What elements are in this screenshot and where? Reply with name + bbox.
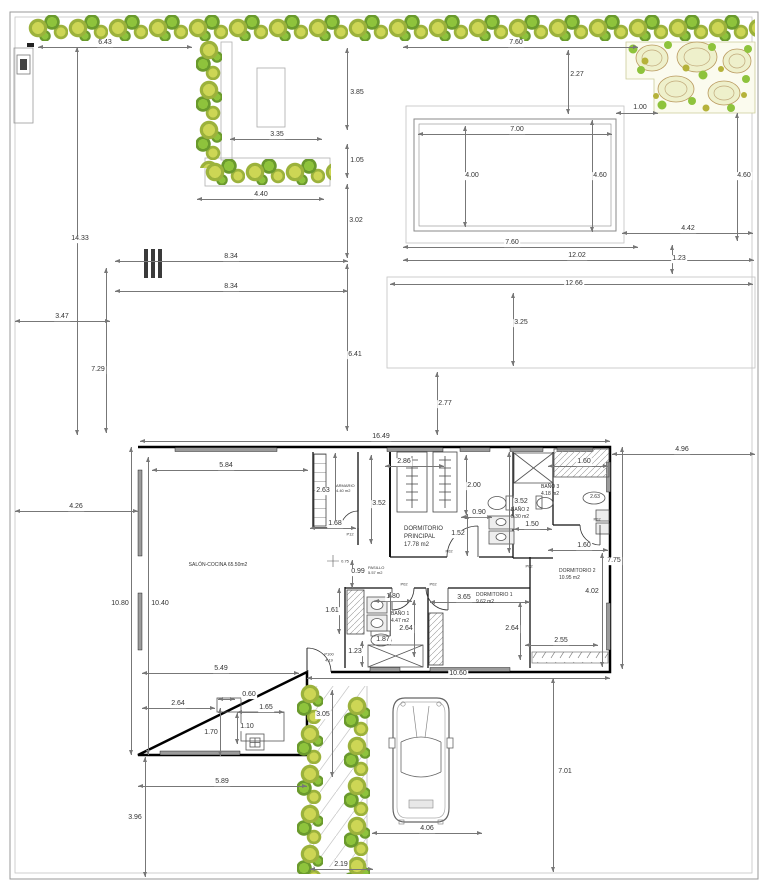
steps-icon — [144, 249, 162, 278]
terrace — [387, 277, 755, 368]
mirror-left — [389, 738, 395, 748]
armario-shelves — [314, 454, 326, 526]
hedge-l-vertical — [196, 40, 222, 168]
gate-post-mark — [27, 43, 34, 47]
plan-linework — [0, 0, 768, 891]
wardrobe — [347, 590, 364, 634]
garden-patch — [626, 41, 755, 113]
trunk — [409, 800, 433, 808]
pool — [406, 106, 624, 243]
hedge-driveway-right — [344, 696, 370, 874]
pergola-strip — [532, 652, 608, 663]
plot-boundary — [10, 12, 758, 879]
wardrobe — [429, 613, 443, 665]
mirror-right — [447, 738, 453, 748]
garden-shed — [257, 68, 285, 127]
shower-bano3 — [554, 449, 609, 477]
hedge-l-horizontal — [205, 159, 331, 186]
hedge-top — [28, 15, 755, 42]
car-top-view — [389, 698, 453, 824]
hedge-driveway-left — [297, 684, 323, 874]
floor-plan-sheet: 6.433.853.351.054.403.0214.338.348.343.4… — [0, 0, 768, 891]
pool-deck — [406, 106, 624, 243]
utility-meter-icon — [14, 48, 33, 123]
